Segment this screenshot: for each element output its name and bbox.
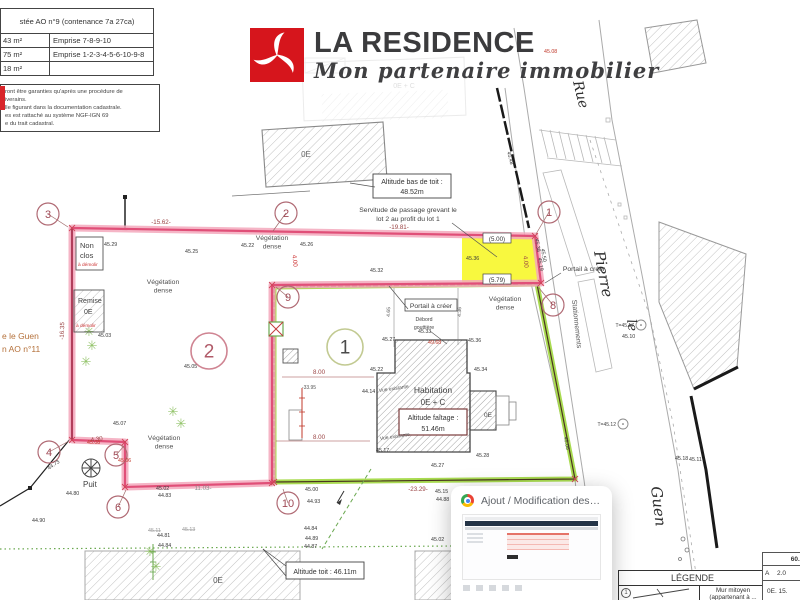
portail-label-1: Portail à créer — [410, 303, 453, 310]
dimension-label: -15.62- — [151, 219, 171, 226]
oe-ext-label: 0E — [484, 412, 493, 419]
vegetation-label: dense — [154, 288, 173, 295]
triskelion-icon — [250, 28, 304, 82]
spot-elevation: 45.27 — [431, 463, 444, 469]
parcel-table-title: stée AO n°9 (contenance 7a 27ca) — [1, 9, 153, 34]
spot-elevation: 44.84 — [304, 526, 317, 532]
habitation-label: Habitation — [414, 385, 453, 395]
demolish-label: à démolir — [78, 262, 98, 268]
spot-elevation: 45.03 — [98, 333, 111, 339]
dimension-label: 11.03- — [194, 485, 211, 492]
building-east — [659, 222, 746, 389]
vegetation-label: Végétation — [256, 235, 289, 242]
bas-toit-label: Altitude bas de toit : — [381, 179, 443, 186]
window-preview-popup[interactable]: Ajout / Modification des ph... — [451, 486, 612, 600]
spot-elevation: 49.68 — [428, 340, 441, 346]
vegetation-label: Végétation — [147, 279, 180, 286]
bas-toit-value: 48.52m — [400, 189, 424, 196]
svg-text:✳: ✳ — [176, 416, 187, 431]
remise-level-label: 0E — [84, 309, 93, 316]
survey-marker-number: 10 — [282, 498, 294, 510]
corner-table: 60.50 A 2.0 0E. 15. — [762, 552, 800, 600]
red-marker — [0, 86, 5, 110]
spot-elevation: 44.90 — [32, 518, 45, 524]
spot-elevation: 44.88 — [436, 497, 449, 503]
cadastral-plan-page: 0E + C — [0, 0, 800, 600]
servitude-label-2: lot 2 au profit du lot 1 — [376, 216, 440, 223]
spot-elevation: 45.36 — [466, 256, 479, 262]
legend-symbol: 1 — [619, 586, 700, 600]
spot-elevation: 45.08 — [87, 440, 100, 446]
mini-table — [507, 533, 569, 550]
spot-elevation: 44.81 — [157, 533, 170, 539]
spot-elevation: 45.48 — [505, 151, 514, 165]
tree-label: T=45.12 — [598, 422, 617, 428]
spot-elevation: 44.80 — [66, 491, 79, 497]
dimension-label: -19.81- — [389, 224, 409, 231]
stationnements-label: Stationnements — [570, 299, 582, 349]
dimension-label: 8.00 — [313, 434, 326, 441]
dimension-label: -16.35 — [59, 322, 67, 340]
dimension-label: (5.00) — [489, 236, 505, 243]
survey-marker-number: 4 — [46, 447, 52, 459]
spot-elevation: 45.17 — [376, 448, 389, 454]
popup-title: Ajout / Modification des ph... — [481, 495, 602, 507]
corner-table-header: 60.50 — [763, 553, 800, 566]
street-le-label: le — [623, 318, 640, 332]
spot-elevation: 45.25 — [185, 249, 198, 255]
oe-bottom-label: 0E — [213, 576, 223, 585]
svg-text:✳: ✳ — [81, 354, 92, 369]
spot-elevation: 45.15 — [435, 489, 448, 495]
corner-cell: 2.0 — [777, 570, 786, 577]
survey-marker-number: 1 — [546, 207, 552, 219]
popup-thumbnail — [462, 514, 601, 580]
legend-item-text: Mur mitoyen (appartenant à ... — [700, 586, 766, 600]
street-left-label-1: e le Guen — [2, 331, 39, 341]
non-clos-label-1: Non — [80, 241, 94, 250]
svg-text:✳: ✳ — [87, 338, 98, 353]
mini-button — [507, 555, 518, 559]
legend-row: 1 Mur mitoyen (appartenant à ... — [619, 586, 766, 600]
faitage-label: Altitude faîtage : — [408, 415, 459, 422]
spot-elevation: 45.18 — [675, 456, 688, 462]
spot-elevation: 45.32 — [370, 268, 383, 274]
demolish-label-2: à démolir — [76, 323, 96, 329]
dimension-label: -23.29- — [408, 486, 428, 493]
logo-name: LA RESIDENCE — [314, 28, 659, 58]
dimension-label: 4.36 — [457, 307, 463, 317]
logo-tagline: Mon partenaire immobilier — [314, 58, 659, 83]
faitage-value: 51.46m — [421, 426, 445, 433]
vegetation-label: dense — [496, 305, 515, 312]
spot-elevation: 45.34 — [474, 367, 487, 373]
street-guen-label: Guen — [647, 485, 670, 527]
popup-header: Ajout / Modification des ph... — [451, 486, 612, 511]
parcel-table: stée AO n°9 (contenance 7a 27ca) 43 m² E… — [0, 8, 154, 76]
spot-elevation: 45.27 — [382, 337, 395, 343]
popup-toolbar — [451, 580, 612, 596]
spot-elevation: 45.11 — [689, 457, 702, 463]
ghost-building-label: 0E + C — [393, 83, 415, 90]
spot-elevation: 45.10 — [622, 334, 635, 340]
parcel-emprise-cell: Emprise 7-8-9-10 — [50, 36, 153, 45]
note-line: iverains. — [5, 96, 157, 104]
svg-text:✳: ✳ — [151, 559, 162, 574]
note-line: lle figurant dans la documentation cadas… — [5, 104, 157, 112]
survey-marker-number: 3 — [45, 209, 51, 221]
spot-elevation: 44.73 — [47, 459, 61, 472]
table-row: 43 m² Emprise 7-8-9-10 — [1, 34, 153, 48]
parking-bays — [539, 118, 627, 372]
svg-text:✳: ✳ — [145, 544, 156, 559]
alt-toit-label: Altitude toit : 46.11m — [293, 569, 356, 576]
dimension-label: -33.95 — [302, 385, 316, 391]
parcel-area-cell: 18 m² — [1, 62, 50, 75]
parcel-area-cell: 43 m² — [1, 34, 50, 47]
puit-label: Puit — [83, 480, 98, 489]
dimension-label: 4.00 — [290, 255, 298, 268]
dimension-label: 8.00 — [313, 369, 326, 376]
building-oe-top — [262, 122, 387, 187]
street-pierre-label: Pierre — [590, 248, 617, 299]
note-line: e du trait cadastral. — [5, 120, 157, 128]
spot-elevation: 45.29 — [104, 242, 117, 248]
dimension-label: 4.65 — [386, 307, 392, 317]
spot-elevation: 45.05 — [184, 364, 197, 370]
spot-elevation: 45.06 — [118, 458, 131, 464]
legend-title: LÉGENDE — [619, 571, 766, 586]
survey-marker-number: 2 — [283, 208, 289, 220]
spot-elevation: 45.26 — [300, 242, 313, 248]
spot-elevation: 44.14 — [362, 389, 375, 395]
parcel-emprise-cell: Emprise 1-2-3-4-5-6-10-9-8 — [50, 50, 153, 59]
note-line: es est rattaché au système NGF-IGN 69 — [5, 112, 157, 120]
spot-elevation: 45.00 — [305, 487, 318, 493]
spot-elevation: 44.87 — [304, 544, 317, 550]
spot-elevation: 45.02 — [431, 537, 444, 543]
survey-marker-number: 6 — [115, 502, 121, 514]
vegetation-label: dense — [263, 244, 282, 251]
corner-table-row: A 2.0 — [763, 566, 800, 581]
spot-elevation: 45.28 — [476, 453, 489, 459]
vegetation-label: dense — [155, 444, 174, 451]
debord-label-1: Débord — [415, 317, 432, 323]
note-box: ront être garanties qu'après une procédu… — [0, 84, 160, 132]
street-left-label-2: n AO n°11 — [2, 344, 40, 354]
habitation-level-label: 0E + C — [421, 398, 446, 407]
legend-item-line: Mur mitoyen — [700, 587, 766, 594]
spot-elevation: 45.07 — [113, 421, 126, 427]
note-line: ront être garanties qu'après une procédu… — [5, 88, 157, 96]
parcel-area-cell: 75 m² — [1, 48, 50, 61]
corner-table-row2: 0E. 15. — [763, 581, 800, 600]
non-clos-label-2: clos — [80, 251, 94, 260]
vegetation-label: Végétation — [489, 296, 522, 303]
flow-arrow — [337, 491, 344, 505]
remise-label: Remise — [78, 298, 102, 305]
oe-top-label: 0E — [301, 150, 311, 159]
legend-item-line: (appartenant à ... — [700, 594, 766, 600]
lot-number: 2 — [204, 342, 215, 363]
corner-cell: A — [763, 570, 777, 577]
vegetation-label: Végétation — [148, 435, 181, 442]
dimension-label: 4.00 — [521, 256, 529, 269]
spot-elevation: 45.13 — [182, 527, 195, 533]
spot-elevation: 44.83 — [158, 493, 171, 499]
well-icon — [82, 459, 100, 477]
house-extension — [470, 391, 496, 430]
agency-logo: LA RESIDENCE Mon partenaire immobilier — [250, 28, 659, 83]
spot-elevation: 45.36 — [468, 338, 481, 344]
table-row: 75 m² Emprise 1-2-3-4-5-6-10-9-8 — [1, 48, 153, 62]
mini-sidebar — [467, 533, 483, 545]
spot-elevation: 44.89 — [305, 536, 318, 542]
chrome-icon — [461, 494, 474, 507]
debord-label-2: gouttière — [414, 325, 434, 331]
table-row: 18 m² — [1, 62, 153, 75]
servitude-label-1: Servitude de passage grevant le — [359, 207, 457, 214]
spot-elevation: 44.93 — [307, 499, 320, 505]
wall-symbol-icon — [619, 586, 697, 600]
survey-marker-number: 8 — [550, 300, 556, 312]
dimension-label: (5.79) — [489, 277, 505, 284]
spot-elevation: 45.05 — [562, 436, 570, 450]
legend-box: LÉGENDE 1 Mur mitoyen (appartenant à ... — [618, 570, 767, 600]
lot-number: 1 — [340, 338, 351, 359]
spot-elevation: 45.02 — [156, 486, 169, 492]
spot-elevation: 44.84 — [158, 543, 171, 549]
hatched-square-icon — [283, 349, 298, 363]
spot-elevation: 45.22 — [241, 243, 254, 249]
survey-marker-number: 9 — [285, 292, 291, 304]
spot-elevation: 45.22 — [370, 367, 383, 373]
building-oe-bottom — [85, 551, 300, 600]
